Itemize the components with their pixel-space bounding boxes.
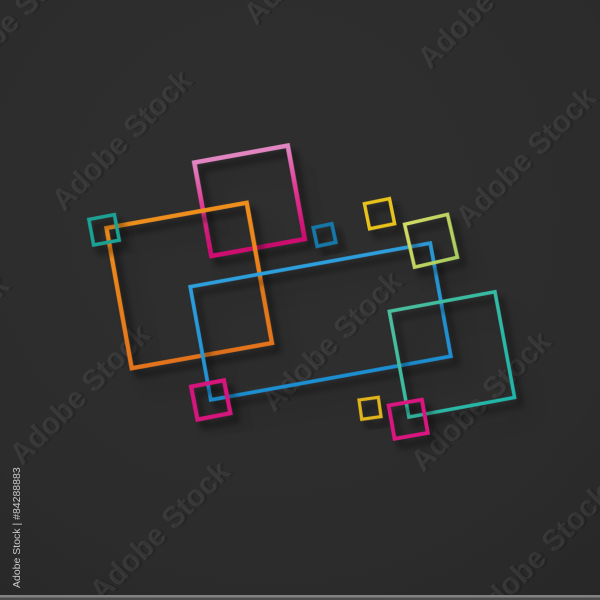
svg-text:Adobe Stock | #84288883: Adobe Stock | #84288883 [11, 467, 23, 588]
